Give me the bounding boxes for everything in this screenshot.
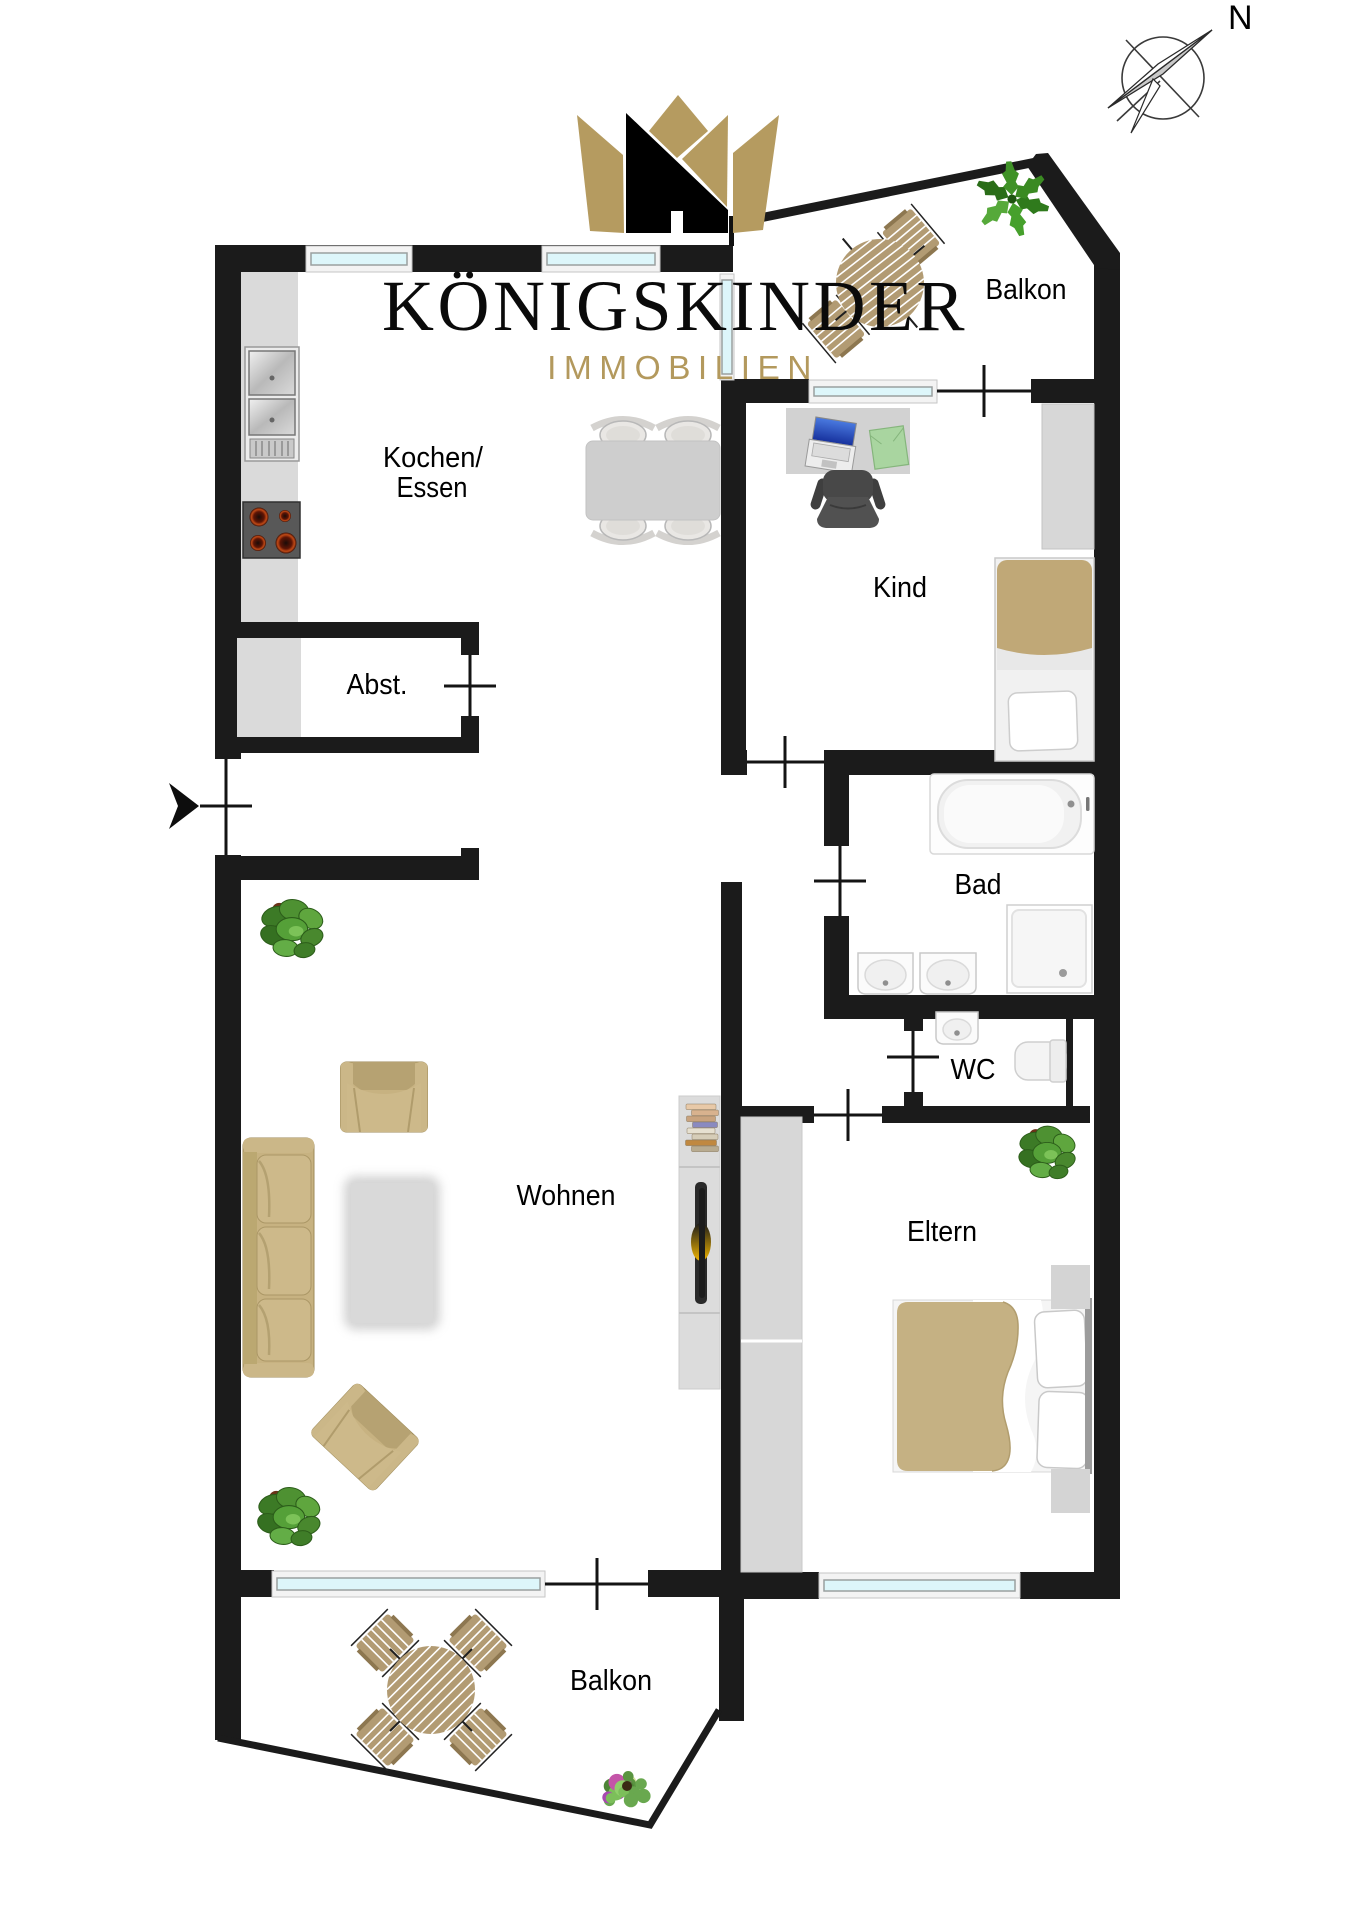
svg-text:Essen: Essen (397, 472, 468, 504)
svg-text:KÖNIGSKINDER: KÖNIGSKINDER (382, 266, 968, 346)
svg-text:Eltern: Eltern (907, 1216, 977, 1248)
svg-text:Kochen/: Kochen/ (383, 442, 483, 474)
svg-text:IMMOBILIEN: IMMOBILIEN (547, 350, 819, 387)
svg-text:Wohnen: Wohnen (517, 1180, 616, 1212)
svg-text:Balkon: Balkon (570, 1665, 652, 1697)
svg-text:Bad: Bad (955, 869, 1002, 901)
svg-text:Balkon: Balkon (986, 274, 1067, 306)
svg-text:N: N (1228, 0, 1253, 37)
svg-text:Abst.: Abst. (347, 669, 408, 701)
svg-text:WC: WC (951, 1054, 996, 1086)
svg-text:Kind: Kind (873, 572, 927, 604)
